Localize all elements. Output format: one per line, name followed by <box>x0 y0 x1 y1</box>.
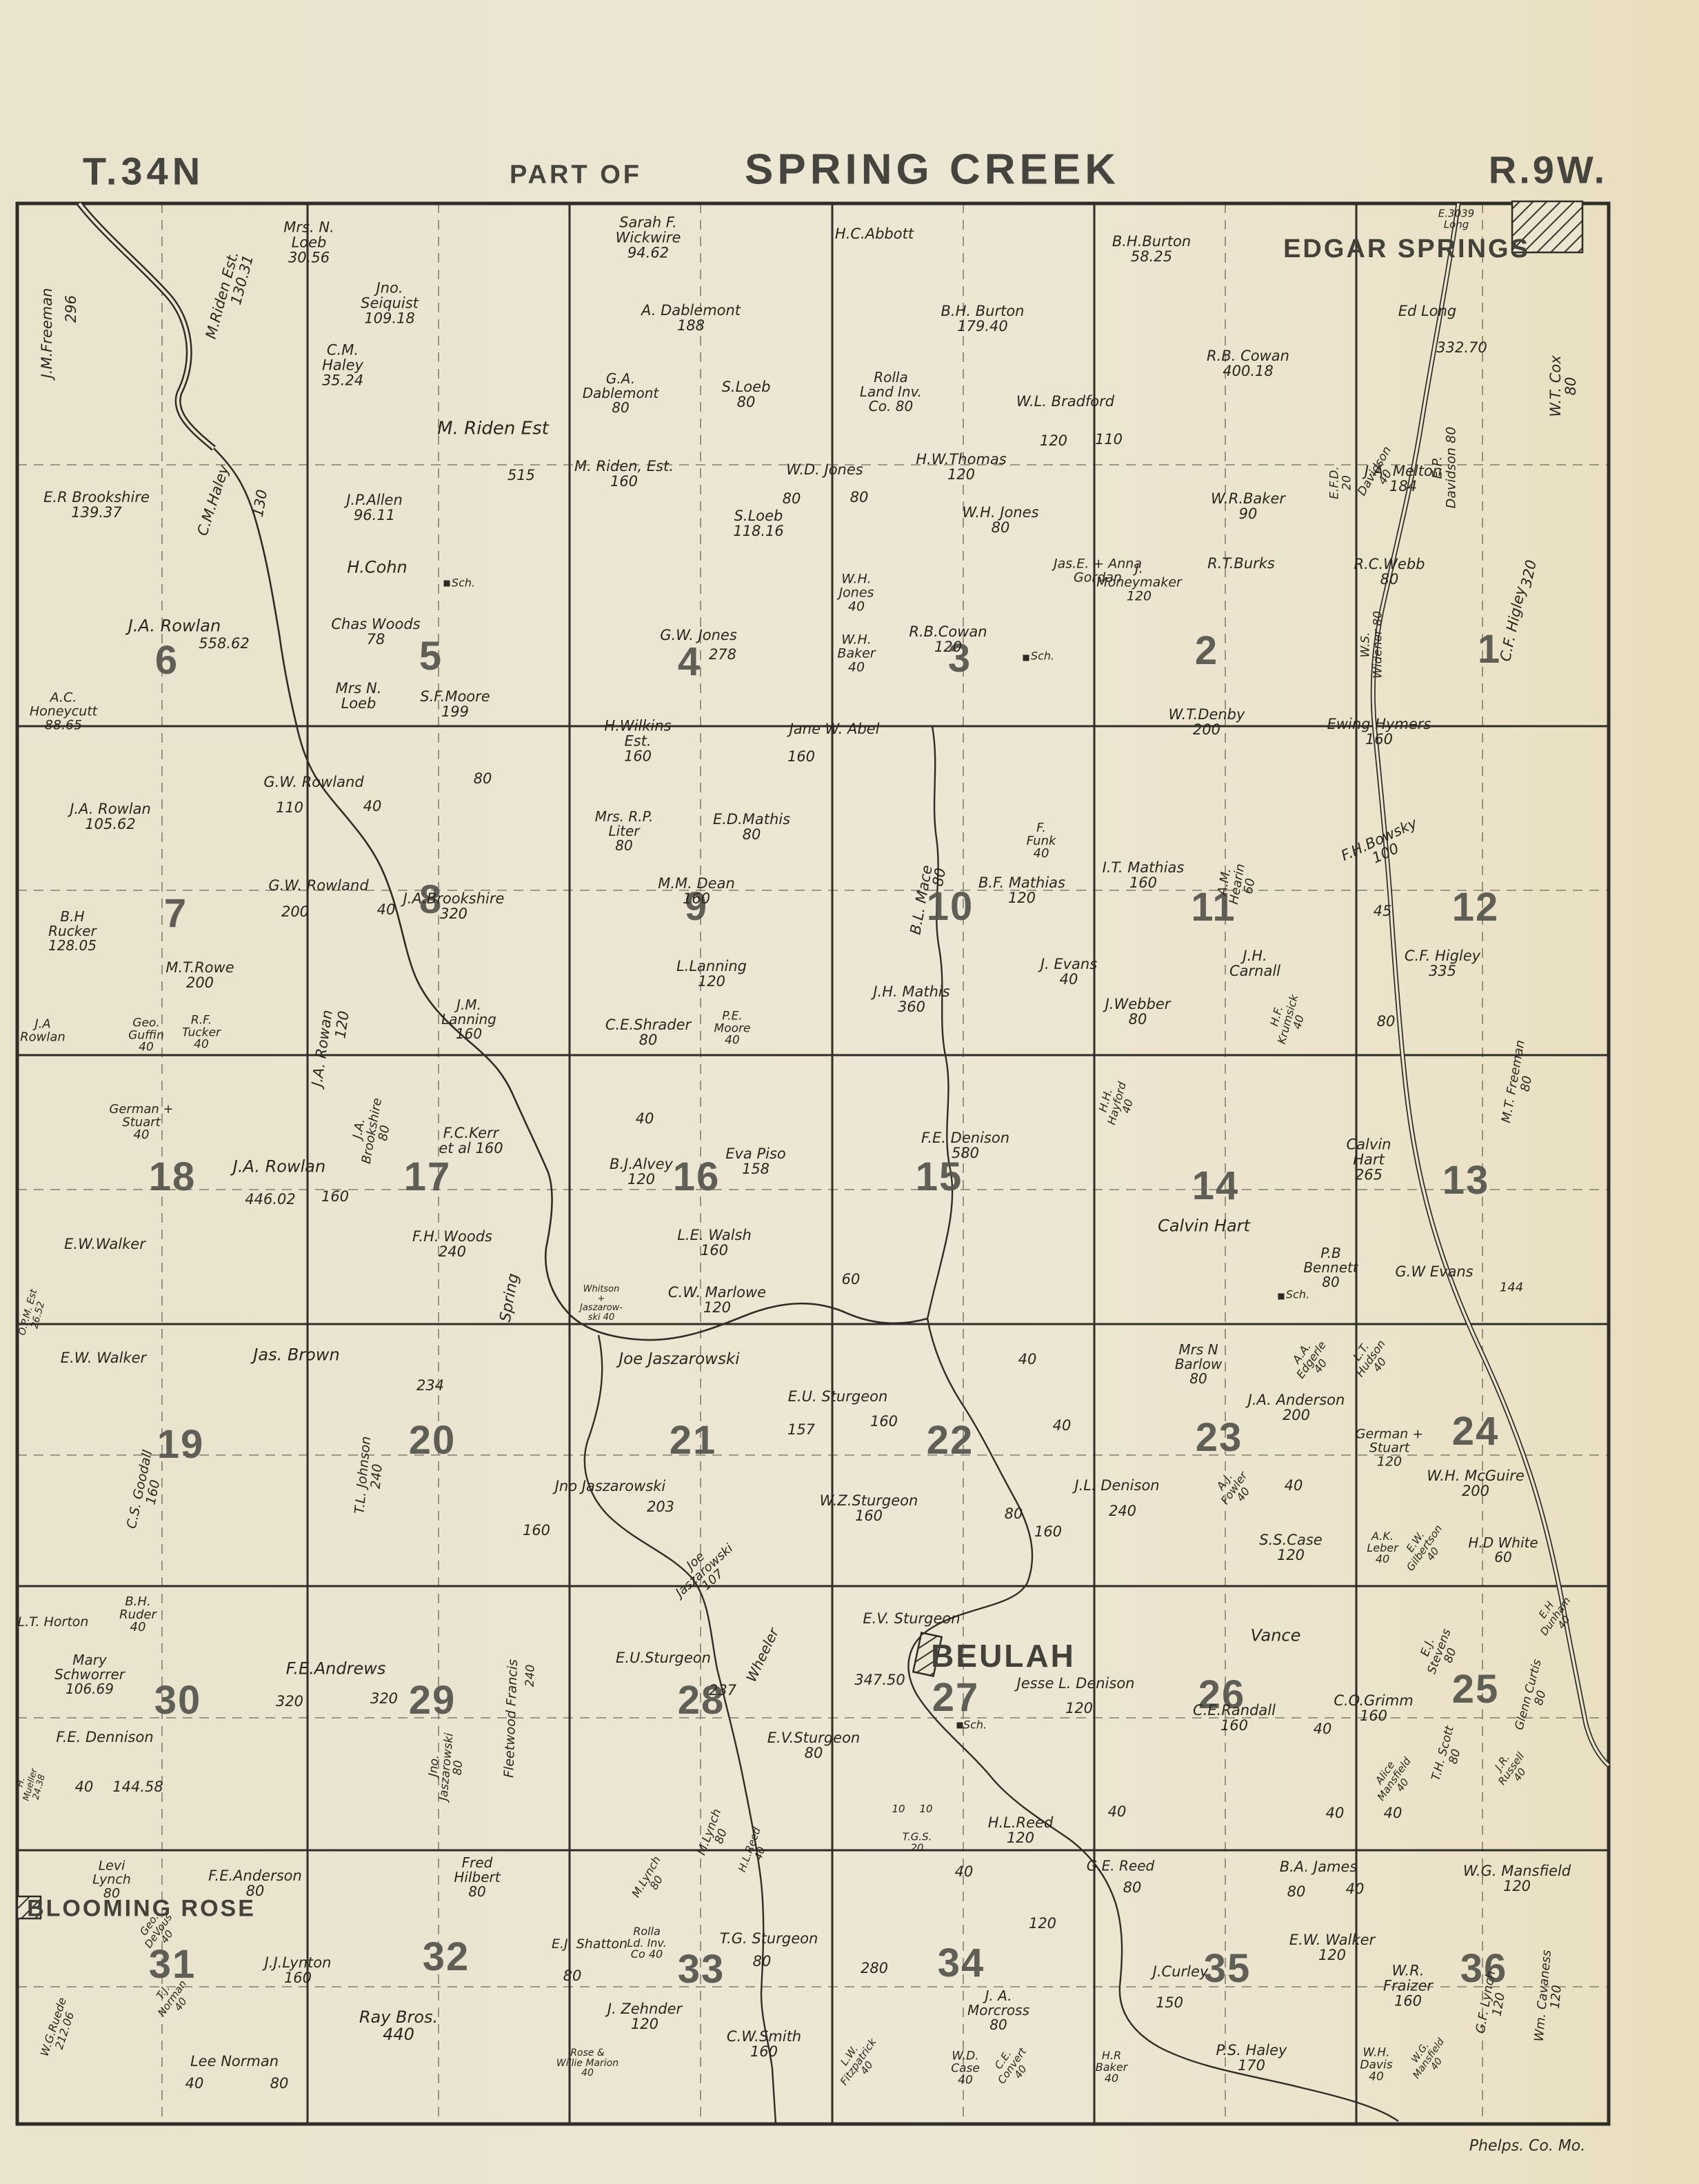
owner-label: 40 <box>1285 1479 1303 1494</box>
owner-label: W.R.Baker 90 <box>1211 492 1285 522</box>
owner-label: 80 <box>270 2076 289 2092</box>
owner-label: S.Loeb 80 <box>722 380 771 410</box>
owner-label: F.H. Woods 240 <box>412 1230 492 1260</box>
county-credit: Phelps. Co. Mo. <box>1469 2138 1586 2155</box>
owner-label: Calvin Hart 265 <box>1347 1137 1391 1182</box>
owner-label: 40 <box>1108 1805 1127 1820</box>
owner-label: 110 <box>276 801 303 816</box>
owner-label: 40 <box>1018 1352 1037 1367</box>
owner-label: 144 <box>1500 1282 1523 1295</box>
owner-label: F.E. Denison 580 <box>921 1131 1009 1161</box>
section-number: 15 <box>916 1156 963 1198</box>
owner-label: W.H. McGuire 200 <box>1427 1469 1525 1499</box>
owner-label: 280 <box>861 1961 888 1976</box>
owner-label: E.V.Sturgeon 80 <box>767 1731 861 1761</box>
owner-label: 80 <box>563 1969 582 1984</box>
owner-label: R.B. Cowan 400.18 <box>1207 349 1289 379</box>
owner-label: E.F.D. 20 <box>1329 466 1353 499</box>
owner-label: Sch. <box>452 578 475 590</box>
owner-label: J.Webber 80 <box>1105 997 1171 1028</box>
owner-label: L.T. Horton <box>18 1616 89 1630</box>
owner-label: F. Funk 40 <box>1027 822 1056 861</box>
owner-label: 80 <box>850 490 869 505</box>
owner-label: 80 <box>1377 1014 1396 1030</box>
owner-label: E.W. Walker <box>61 1351 146 1366</box>
section-number: 34 <box>938 1943 985 1984</box>
owner-label: 40 <box>1384 1806 1403 1821</box>
plat-map-page: T.34N PART OF SPRING CREEK R.9W. <box>0 0 1699 2184</box>
owner-label: J.A. Anderson 200 <box>1248 1393 1345 1423</box>
section-number: 20 <box>409 1420 456 1461</box>
owner-label: E.3039 Long <box>1438 208 1474 230</box>
owner-label: F.E.Andrews <box>286 1661 386 1678</box>
owner-label: M. Riden Est <box>437 419 549 438</box>
owner-label: E.D.Mathis 80 <box>713 812 790 843</box>
owner-label: 80 <box>474 772 492 787</box>
owner-label: Rolla Land Inv. Co. 80 <box>860 370 922 413</box>
owner-label: 80 <box>931 867 949 888</box>
owner-label: Calvin Hart <box>1158 1218 1250 1235</box>
owner-label: 515 <box>507 468 535 483</box>
owner-label: 296 <box>64 295 79 323</box>
owner-label: C.W.Smith 160 <box>727 2030 801 2060</box>
owner-label: C.W. Marlowe 120 <box>668 1285 766 1316</box>
owner-label: 40 <box>75 1780 94 1795</box>
owner-label: Rose & Willie Marion 40 <box>556 2048 619 2078</box>
owner-label: 160 <box>787 750 815 765</box>
school-marker <box>957 1723 963 1729</box>
owner-label: G.W Evans <box>1395 1265 1473 1280</box>
owner-label: J.A Rowlan <box>20 1018 66 1043</box>
owner-label: E.W.Walker <box>64 1237 145 1252</box>
owner-label: 558.62 <box>199 637 249 652</box>
owner-label: H.D White 60 <box>1468 1536 1538 1565</box>
section-number: 16 <box>673 1156 721 1198</box>
owner-label: W.H. Jones 40 <box>839 572 874 613</box>
owner-label: 120 <box>1029 1916 1056 1932</box>
owner-label: Sch. <box>1286 1290 1309 1301</box>
section-number: 32 <box>423 1936 470 1978</box>
owner-label: W.D. Jones <box>786 463 863 478</box>
owner-label: J.A. Rowlan <box>128 618 221 635</box>
owner-label: Sch. <box>963 1720 987 1732</box>
owner-label: 203 <box>647 1500 674 1515</box>
owner-label: German + Stuart 120 <box>1356 1427 1423 1468</box>
owner-label: J. A. Morcross 80 <box>967 1989 1029 2032</box>
owner-label: 45 <box>1374 904 1392 919</box>
section-number: 18 <box>149 1156 197 1198</box>
owner-label: A.K. Leber 40 <box>1367 1531 1398 1565</box>
owner-label: 80 <box>783 492 801 507</box>
owner-label: B.H.Burton 58.25 <box>1112 234 1191 265</box>
owner-label: Jno. Seiquist 109.18 <box>361 281 419 325</box>
owner-label: 237 <box>709 1683 736 1699</box>
owner-label: 347.50 <box>854 1673 905 1688</box>
owner-label: E.U.Sturgeon <box>616 1651 711 1666</box>
owner-label: W.R. Fraizer 160 <box>1383 1963 1433 2008</box>
owner-label: 40 <box>363 799 382 814</box>
owner-label: E.P. Davidson 80 <box>1431 427 1458 509</box>
section-number: 33 <box>678 1949 725 1990</box>
owner-label: G.W. Rowland <box>263 775 363 790</box>
owner-label: A.C. Honeycutt 88.65 <box>30 691 97 732</box>
owner-label: Mary Schworrer 106.69 <box>54 1653 125 1696</box>
owner-label: 40 <box>636 1112 654 1127</box>
owner-label: G.E. Reed <box>1087 1859 1154 1874</box>
owner-label: 60 <box>842 1272 861 1288</box>
owner-label: E.J. Shatton <box>552 1938 627 1952</box>
owner-label: 240 <box>525 1664 538 1687</box>
owner-label: H.C.Abbott <box>835 227 914 242</box>
section-number: 24 <box>1452 1411 1500 1452</box>
owner-label: 320 <box>370 1692 398 1707</box>
road-path <box>1373 203 1609 1765</box>
owner-label: C.F. Higley 335 <box>1405 949 1480 979</box>
owner-label: P.B Bennett 80 <box>1303 1246 1358 1289</box>
owner-label: 40 <box>1314 1722 1332 1737</box>
owner-label: R.C.Webb 80 <box>1354 557 1425 588</box>
owner-label: Fred Hilbert 80 <box>454 1856 500 1899</box>
town-hatch-blocks <box>17 201 1582 1918</box>
section-number: 6 <box>155 640 179 681</box>
owner-label: J.L. Denison <box>1074 1479 1159 1494</box>
owner-label: E.U. Sturgeon <box>788 1390 888 1405</box>
owner-label: 40 <box>1326 1806 1345 1821</box>
section-number: 30 <box>154 1680 202 1721</box>
owner-label: 240 <box>1109 1504 1136 1519</box>
owner-label: F.C.Kerr et al 160 <box>439 1126 503 1156</box>
owner-label: 40 <box>1053 1419 1072 1434</box>
owner-label: C.E.Randall 160 <box>1193 1703 1276 1734</box>
owner-label: 160 <box>870 1414 898 1430</box>
owner-label: C.M. Haley 35.24 <box>322 343 363 388</box>
owner-label: M.M. Dean 160 <box>658 876 735 907</box>
section-number: 25 <box>1452 1669 1500 1710</box>
owner-label: 120 <box>1065 1701 1093 1716</box>
owner-label: Ed Long <box>1398 304 1456 319</box>
owner-label: J.A. Rowlan 105.62 <box>70 802 151 832</box>
owner-label: R.B.Cowan 120 <box>909 625 987 655</box>
owner-label: Jno. Jaszarowski 80 <box>425 1732 468 1803</box>
section-number: 12 <box>1452 887 1500 928</box>
owner-label: Vance <box>1251 1627 1301 1645</box>
owner-label: W.T.Denby 200 <box>1169 708 1245 738</box>
owner-label: 332.70 <box>1436 341 1487 356</box>
owner-label: M. Riden, Est. 160 <box>574 459 674 490</box>
owner-label: 40 <box>377 903 396 918</box>
school-marker <box>1023 655 1029 661</box>
owner-label: 10 <box>892 1804 905 1815</box>
owner-label: J.Curley <box>1153 1965 1209 1980</box>
owner-label: 80 <box>1287 1885 1306 1900</box>
owner-label: J.M.Freeman <box>40 288 55 379</box>
owner-label: W.H. Baker 40 <box>837 633 875 674</box>
owner-label: Rolla Ld. Inv. Co 40 <box>627 1926 666 1961</box>
section-number: 14 <box>1192 1165 1240 1207</box>
owner-label: 80 <box>1005 1507 1023 1522</box>
owner-label: 40 <box>1346 1882 1365 1897</box>
owner-label: H.R Baker 40 <box>1096 2050 1127 2085</box>
owner-label: T.G.S. 20 <box>903 1832 932 1853</box>
owner-label: G.A. Dablemont 80 <box>583 372 659 414</box>
owner-label: Mrs. N. Loeb 30.56 <box>283 220 334 265</box>
owner-label: Geo. Guffin 40 <box>128 1017 164 1054</box>
section-number: 7 <box>164 893 188 934</box>
owner-label: E.V. Sturgeon <box>863 1612 960 1627</box>
owner-label: J.J.Lynton 160 <box>265 1956 332 1986</box>
owner-label: F.E. Dennison <box>56 1730 153 1745</box>
owner-label: J. Zehnder 120 <box>607 2002 682 2032</box>
owner-label: J.M. Lanning 160 <box>441 998 496 1041</box>
owner-label: 160 <box>1034 1525 1062 1540</box>
owner-label: Sch. <box>1031 651 1054 663</box>
owner-label: W.D. Case 40 <box>951 2050 980 2087</box>
owner-label: Mrs N. Loeb <box>336 681 382 712</box>
owner-label: H.Wilkins Est. 160 <box>604 719 671 763</box>
owner-label: 40 <box>185 2076 204 2092</box>
section-number: 22 <box>927 1420 974 1461</box>
owner-label: German + Stuart 40 <box>109 1103 173 1142</box>
owner-label: J. Evans 40 <box>1040 957 1097 988</box>
owner-label: Sarah F. Wickwire 94.62 <box>616 215 681 260</box>
owner-label: Jesse L. Denison <box>1017 1676 1135 1692</box>
owner-label: H.L.Reed 120 <box>988 1816 1054 1846</box>
owner-label: P.S. Haley 170 <box>1216 2043 1287 2074</box>
owner-label: W.H. Davis 40 <box>1360 2047 1392 2083</box>
owner-label: W.T. Cox 80 <box>1549 355 1579 417</box>
section-number: 5 <box>419 636 443 677</box>
owner-label: R.F. Tucker 40 <box>182 1014 221 1051</box>
owner-label: Mrs N Barlow 80 <box>1175 1343 1222 1385</box>
section-number: 17 <box>404 1156 452 1198</box>
owner-label: E.R Brookshire 139.37 <box>43 490 150 521</box>
map-canvas <box>0 0 1699 2184</box>
owner-label: Jane W. Abel <box>790 722 880 737</box>
owner-label: H.Cohn <box>347 559 408 577</box>
owner-label: 320 <box>276 1694 303 1710</box>
owner-label: 160 <box>523 1523 550 1539</box>
owner-label: J.H. Mathis 360 <box>873 985 949 1015</box>
owner-label: M.T.Rowe 200 <box>165 961 234 991</box>
owner-label: B.H. Burton 179.40 <box>941 304 1025 334</box>
owner-label: Ewing Hymers 160 <box>1327 717 1431 748</box>
owner-label: 144.58 <box>112 1780 163 1795</box>
owner-label: S.S.Case 120 <box>1259 1533 1322 1563</box>
section-number: 1 <box>1478 629 1501 670</box>
section-number: 10 <box>927 886 974 928</box>
owner-label: 10 <box>919 1804 932 1815</box>
owner-label: 200 <box>281 905 309 920</box>
section-number: 35 <box>1204 1948 1251 1990</box>
owner-label: C.E.Shrader 80 <box>605 1018 691 1048</box>
owner-label: A. Dablemont 188 <box>641 303 741 334</box>
owner-label: I.T. Mathias 160 <box>1103 861 1185 891</box>
owner-label: Jas.E. + Anna Gordan <box>1054 557 1142 585</box>
town-label: EDGAR SPRINGS <box>1283 236 1530 263</box>
owner-label: W.S. Widener 80 <box>1360 611 1384 679</box>
owner-label: S.Loeb 118.16 <box>733 509 783 539</box>
owner-label: L.E. Walsh 160 <box>677 1228 752 1259</box>
owner-label: 80 <box>753 1954 772 1970</box>
owner-label: B.H. Ruder 40 <box>119 1596 157 1634</box>
owner-label: B.A. James <box>1280 1860 1358 1875</box>
section-number: 29 <box>409 1680 456 1721</box>
section-number: 27 <box>932 1677 980 1719</box>
owner-label: 157 <box>787 1423 815 1438</box>
owner-label: 446.02 <box>245 1192 295 1208</box>
owner-label: 110 <box>1095 432 1123 448</box>
section-number: 4 <box>678 641 701 683</box>
town-label: BLOOMING ROSE <box>27 1896 256 1921</box>
owner-label: J.H. Carnall <box>1229 949 1280 979</box>
owner-label: Lee Norman <box>190 2054 279 2070</box>
owner-label: 278 <box>709 648 736 663</box>
school-marker <box>444 581 450 587</box>
owner-label: W.G. Mansfield 120 <box>1463 1864 1571 1894</box>
owner-label: J.P.Allen 96.11 <box>346 493 403 523</box>
owner-label: W.H. Jones 80 <box>962 505 1038 536</box>
owner-label: Mrs. R.P. Liter 80 <box>595 810 654 852</box>
owner-label: J.A.Brookshire 320 <box>403 892 505 922</box>
town-label: BEULAH <box>931 1640 1076 1673</box>
owner-label: P.E. Moore 40 <box>714 1010 751 1047</box>
owner-label: Eva Piso 158 <box>725 1147 786 1177</box>
owner-label: 120 <box>1040 434 1067 449</box>
owner-label: Ray Bros. 440 <box>359 2009 438 2043</box>
section-number: 21 <box>670 1420 717 1461</box>
owner-label: A.M. Hearin 60 <box>1215 861 1260 908</box>
owner-label: 40 <box>955 1865 974 1880</box>
section-number: 23 <box>1196 1417 1243 1459</box>
owner-label: S.F.Moore 199 <box>420 690 490 720</box>
owner-label: Levi Lynch 80 <box>92 1859 131 1900</box>
owner-label: Whitson + Jaszarow- ski 40 <box>580 1285 623 1322</box>
owner-label: W.L. Bradford <box>1016 394 1114 410</box>
owner-label: G.W. Jones <box>660 628 737 643</box>
owner-label: L.Lanning 120 <box>676 959 747 990</box>
creek-east-branch <box>909 726 1398 2121</box>
owner-label: T.G. Sturgeon <box>720 1932 818 1947</box>
owner-label: B.H Rucker 128.05 <box>48 910 97 952</box>
owner-label: Jno Jaszarowski <box>555 1479 666 1494</box>
owner-label: Jas. Brown <box>253 1347 339 1364</box>
owner-label: G.W. Rowland <box>268 879 368 894</box>
section-number: 2 <box>1195 630 1218 672</box>
owner-label: E.W. Walker 120 <box>1289 1933 1375 1963</box>
school-marker <box>1278 1294 1285 1300</box>
owner-label: Chas Woods 78 <box>331 617 420 648</box>
owner-label: Joe Jaszarowski <box>619 1352 739 1368</box>
owner-label: 80 <box>1123 1881 1142 1896</box>
owner-label: J.A. Rowlan <box>233 1159 325 1176</box>
owner-label: W.Z.Sturgeon 160 <box>820 1494 918 1524</box>
owner-label: 150 <box>1156 1996 1183 2011</box>
section-number: 13 <box>1442 1160 1490 1201</box>
owner-label: C.O.Grimm 160 <box>1334 1694 1413 1724</box>
owner-label: B.F. Mathias 120 <box>978 876 1065 906</box>
owner-label: B.J.Alvey 120 <box>610 1157 673 1188</box>
owner-label: F.E.Anderson 80 <box>208 1869 302 1899</box>
owner-label: 160 <box>321 1190 349 1205</box>
owner-label: H.W.Thomas 120 <box>916 452 1006 483</box>
owner-label: 234 <box>416 1379 444 1394</box>
owner-label: R.T.Burks <box>1207 557 1275 572</box>
